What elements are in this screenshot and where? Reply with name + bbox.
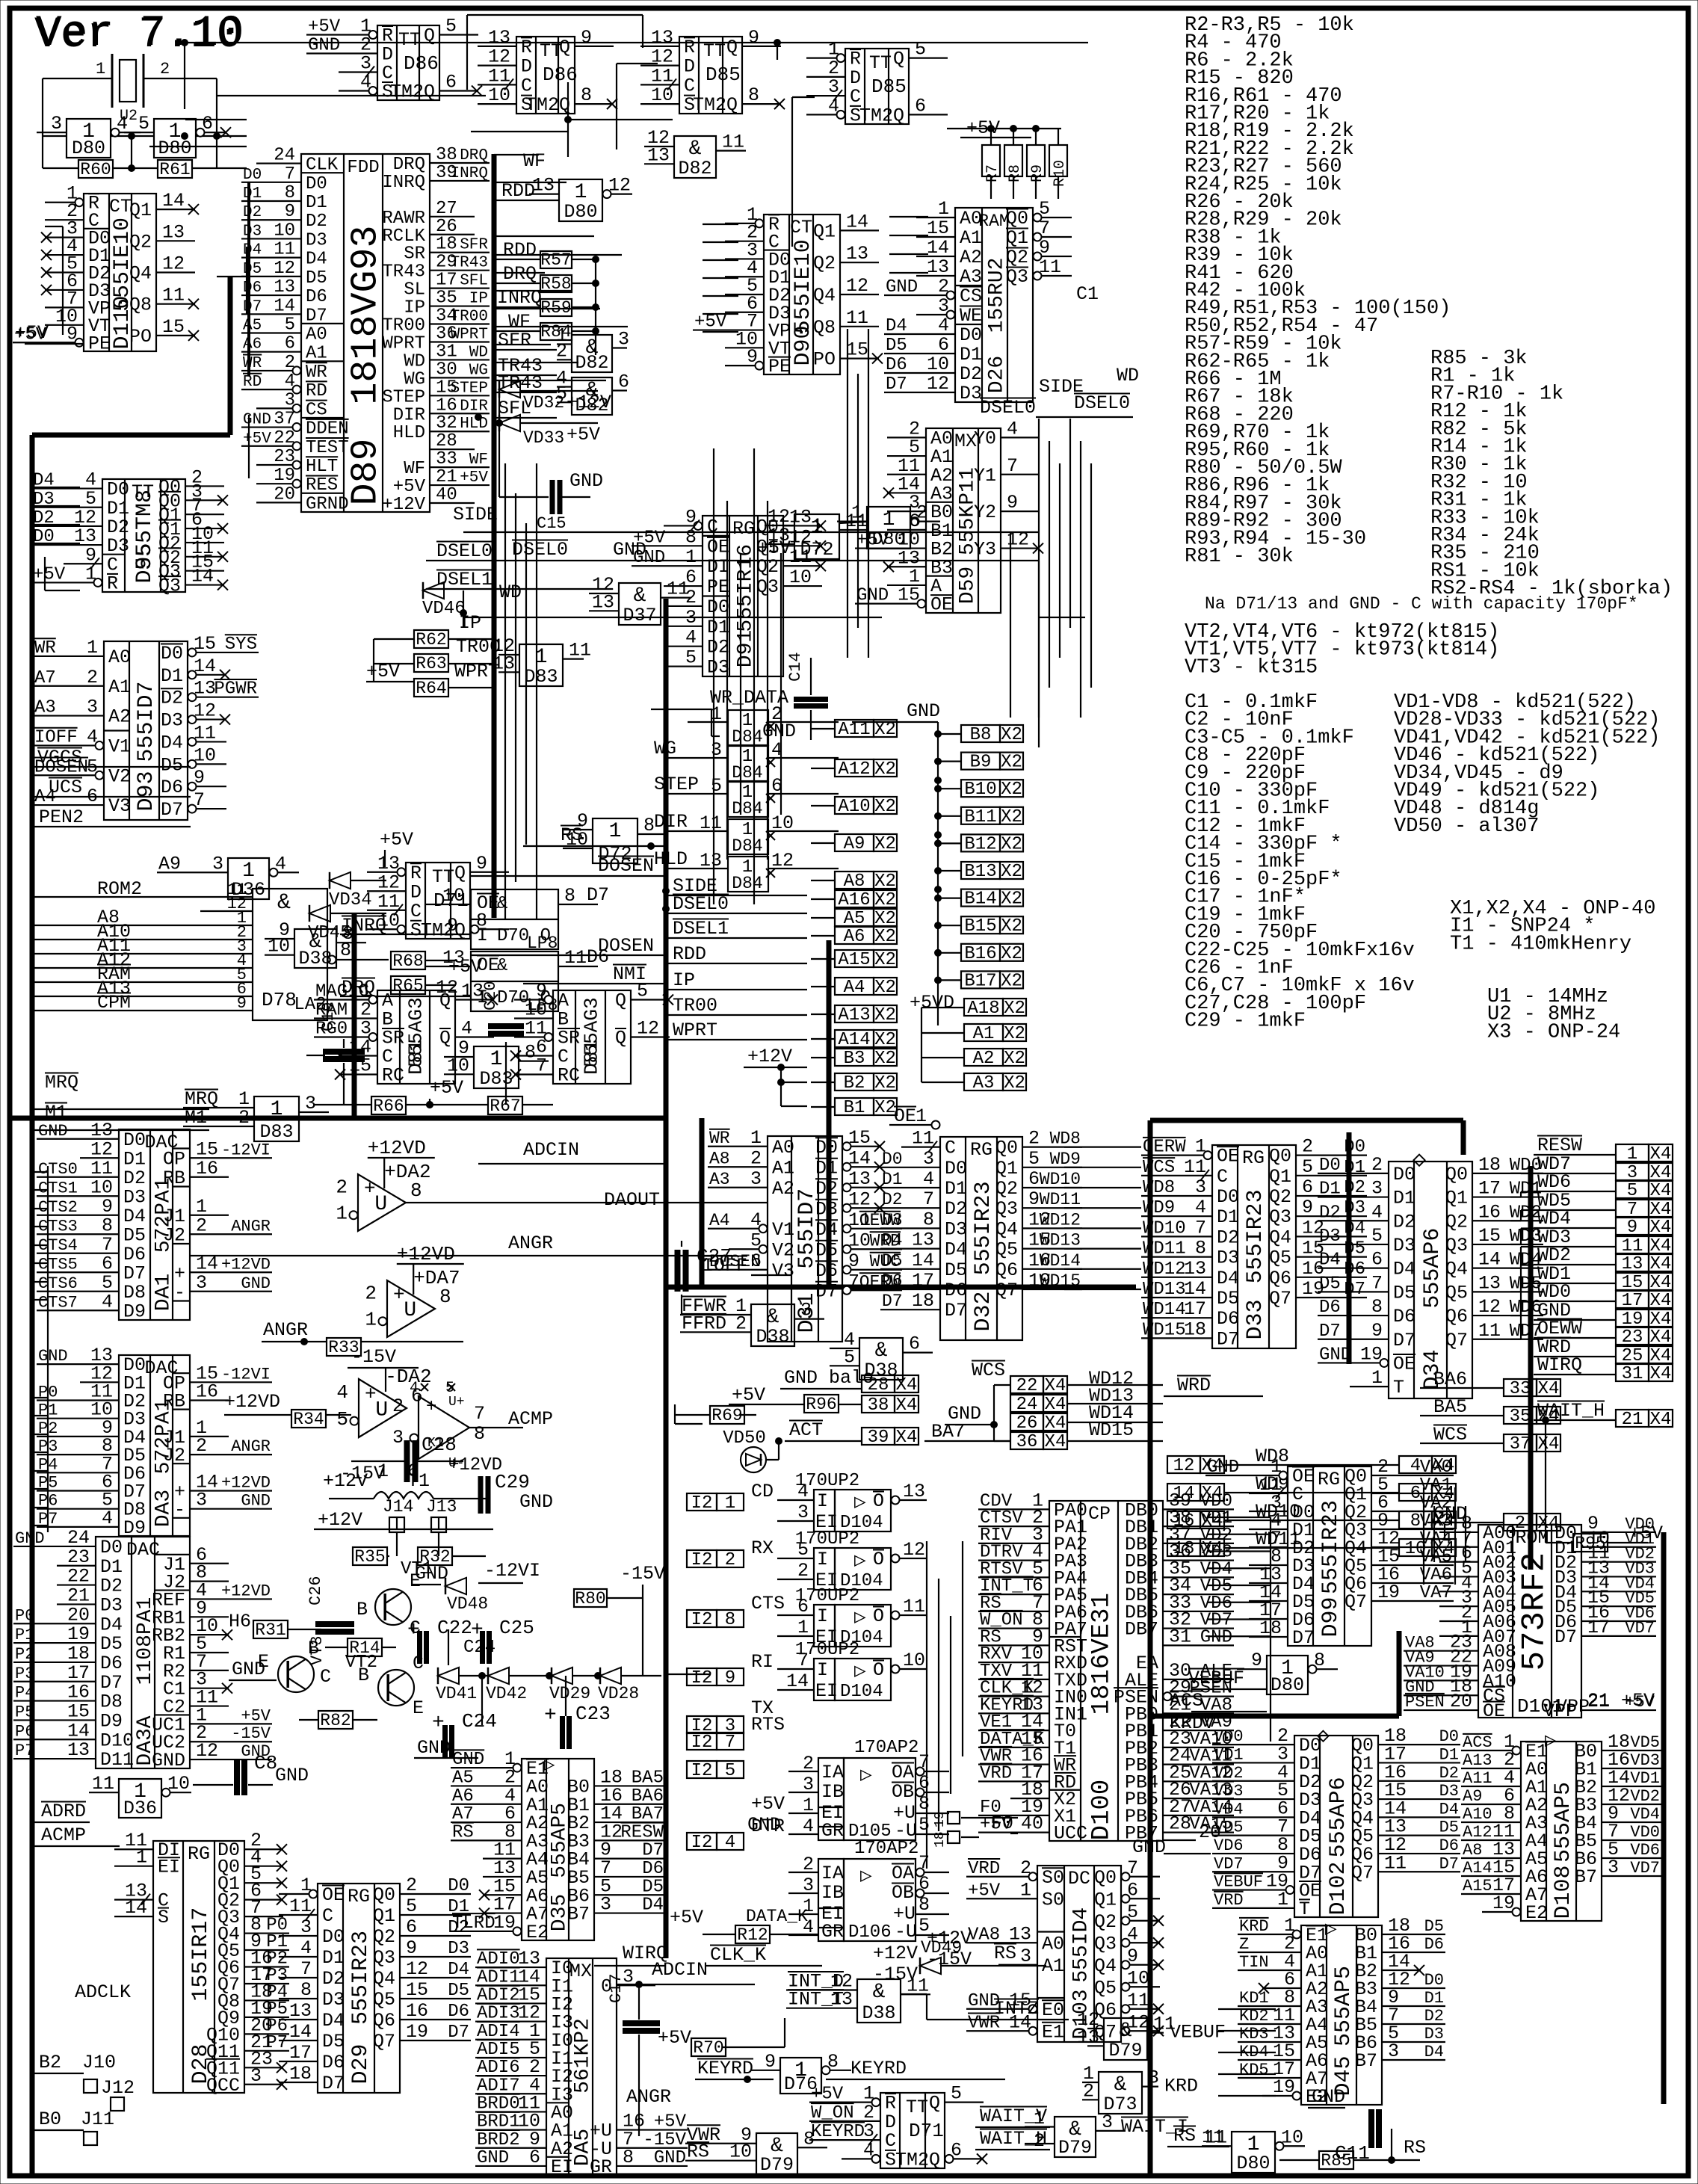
svg-text:D6: D6: [161, 777, 183, 798]
svg-text:555IR23: 555IR23: [1318, 1500, 1344, 1594]
svg-text:11: 11: [789, 546, 812, 568]
svg-text:21: 21: [436, 467, 457, 487]
svg-text:R67: R67: [490, 1096, 520, 1116]
svg-text:12: 12: [608, 175, 631, 197]
svg-text:B0: B0: [39, 2109, 61, 2130]
svg-text:555IR23: 555IR23: [971, 1181, 996, 1275]
svg-text:D5: D5: [1344, 1239, 1365, 1259]
svg-text:23: 23: [1622, 1327, 1643, 1348]
svg-text:VD6: VD6: [1630, 1841, 1660, 1860]
svg-text:+5V: +5V: [658, 2027, 691, 2049]
svg-text:A6: A6: [844, 927, 865, 947]
svg-text:D2: D2: [1344, 1178, 1365, 1198]
svg-text:6: 6: [1028, 1168, 1040, 1190]
svg-text:E0: E0: [1042, 1999, 1064, 2021]
svg-text:D90: D90: [791, 325, 816, 365]
svg-text:A0: A0: [772, 1137, 794, 1159]
svg-text:6: 6: [797, 1596, 809, 1617]
svg-text:DSEL0: DSEL0: [436, 540, 493, 562]
svg-text:D2: D2: [707, 637, 729, 658]
svg-text:D5: D5: [243, 261, 262, 278]
svg-text:D71: D71: [909, 2120, 944, 2142]
svg-text:-15V: -15V: [620, 1563, 665, 1585]
svg-text:A15: A15: [1463, 1877, 1492, 1895]
svg-text:&: &: [497, 894, 507, 914]
svg-text:+5V: +5V: [856, 531, 889, 551]
svg-text:D7: D7: [1439, 1854, 1459, 1873]
svg-text:14: 14: [274, 296, 295, 316]
svg-text:7: 7: [1195, 1217, 1206, 1238]
svg-text:CTS1: CTS1: [38, 1179, 78, 1197]
svg-text:+5V: +5V: [243, 431, 271, 448]
svg-text:10: 10: [789, 567, 812, 588]
svg-text:9: 9: [1039, 237, 1050, 259]
svg-text:D3: D3: [882, 1210, 903, 1230]
svg-text:A1: A1: [772, 1157, 794, 1179]
svg-text:Q: Q: [439, 990, 451, 1012]
svg-text:31: 31: [1622, 1364, 1643, 1384]
svg-text:13: 13: [532, 175, 555, 197]
svg-text:WCS: WCS: [972, 1360, 1005, 1381]
svg-text:37: 37: [1510, 1434, 1531, 1455]
svg-text:SR: SR: [404, 244, 425, 265]
svg-text:12: 12: [846, 275, 868, 297]
svg-text:6: 6: [909, 1333, 920, 1355]
svg-text:CD: CD: [751, 1481, 774, 1502]
svg-text:5: 5: [1028, 1148, 1040, 1170]
svg-text:555IR23: 555IR23: [1243, 1189, 1268, 1283]
svg-text:WRD: WRD: [1177, 1375, 1211, 1396]
svg-text:D0: D0: [1424, 1971, 1444, 1990]
svg-text:8: 8: [827, 2051, 839, 2073]
svg-text:◇: ◇: [1413, 1148, 1426, 1173]
svg-text:+5V: +5V: [732, 1384, 765, 1406]
svg-text:MRQ: MRQ: [45, 1072, 78, 1093]
svg-text:+12V: +12V: [873, 1943, 918, 1964]
svg-text:T1: T1: [407, 1470, 430, 1492]
svg-text:D4: D4: [322, 2010, 345, 2032]
svg-text:2: 2: [1083, 2080, 1094, 2102]
svg-text:11: 11: [846, 307, 868, 329]
svg-text:X2: X2: [1004, 999, 1025, 1019]
svg-text:A1: A1: [973, 1024, 995, 1044]
svg-text:X4: X4: [896, 1375, 918, 1395]
svg-text:WD9: WD9: [1050, 1150, 1081, 1169]
svg-text:GND: GND: [654, 2148, 686, 2168]
svg-text:DSEL0: DSEL0: [673, 893, 729, 915]
svg-text:17: 17: [436, 271, 457, 291]
svg-text:8: 8: [1371, 1296, 1383, 1318]
svg-text:10: 10: [268, 936, 290, 957]
svg-text:IA: IA: [821, 1762, 844, 1783]
svg-text:13: 13: [846, 243, 868, 265]
svg-text:12: 12: [274, 259, 295, 279]
svg-text:GND: GND: [856, 586, 889, 606]
svg-text:D3: D3: [960, 383, 982, 404]
svg-text:WPRT: WPRT: [673, 1019, 717, 1041]
svg-text:VD0: VD0: [1214, 1727, 1244, 1746]
svg-text:GND bale: GND bale: [784, 1367, 874, 1389]
svg-text:B1: B1: [844, 1098, 865, 1118]
svg-text:6: 6: [951, 2139, 962, 2161]
svg-text:A12: A12: [1463, 1823, 1492, 1842]
svg-text:12: 12: [1173, 1456, 1195, 1476]
svg-text:Q5: Q5: [373, 1989, 395, 2011]
svg-text:ADRD: ADRD: [41, 1801, 86, 1822]
svg-text:3: 3: [797, 1502, 809, 1523]
svg-text:VEBUF: VEBUF: [1214, 1873, 1263, 1892]
svg-text:9: 9: [1627, 1218, 1637, 1238]
svg-text:14: 14: [125, 1897, 147, 1919]
svg-text:T1 - 410mkHenry: T1 - 410mkHenry: [1450, 933, 1631, 955]
svg-text:Q: Q: [454, 863, 466, 884]
svg-text:OE: OE: [1483, 1700, 1505, 1722]
svg-text:4: 4: [828, 95, 839, 117]
svg-text:Q5: Q5: [1269, 1247, 1291, 1269]
svg-text:2: 2: [1020, 1857, 1031, 1879]
svg-text:Q0: Q0: [1269, 1146, 1291, 1167]
svg-text:C20: C20: [481, 981, 500, 1011]
svg-text:18: 18: [1478, 1154, 1501, 1176]
svg-text:Q3: Q3: [1094, 1933, 1117, 1955]
svg-text:15: 15: [898, 584, 920, 606]
svg-text:D5: D5: [1393, 1282, 1415, 1304]
svg-text:VD2: VD2: [1214, 1764, 1244, 1783]
svg-text:D33: D33: [1243, 1299, 1268, 1339]
svg-text:Q0: Q0: [995, 1138, 1018, 1159]
svg-text:D81: D81: [405, 1040, 427, 1075]
svg-text:EI: EI: [815, 1680, 838, 1702]
svg-text:C14: C14: [786, 652, 805, 682]
svg-text:Q3: Q3: [373, 1947, 395, 1969]
svg-text:A5: A5: [452, 1768, 474, 1788]
svg-text:X2: X2: [1001, 889, 1022, 910]
svg-text:DAC: DAC: [126, 1539, 160, 1561]
svg-text:Q0: Q0: [1094, 1867, 1117, 1889]
svg-text:4: 4: [938, 315, 949, 336]
svg-text:INRQ: INRQ: [382, 173, 425, 193]
svg-text:5: 5: [138, 113, 149, 135]
svg-text:X2: X2: [1001, 944, 1022, 964]
svg-text:STEP: STEP: [654, 774, 699, 795]
svg-text:WD: WD: [404, 351, 425, 371]
svg-text:D7: D7: [882, 1292, 903, 1311]
svg-text:D7: D7: [1217, 1328, 1239, 1350]
svg-text:1: 1: [85, 563, 96, 584]
svg-text:R9: R9: [1029, 164, 1046, 182]
svg-text:PO: PO: [813, 349, 836, 371]
svg-text:Q4: Q4: [1094, 1955, 1117, 1977]
svg-text:17: 17: [1184, 1298, 1206, 1320]
svg-text:19: 19: [493, 1912, 516, 1934]
svg-text:D4: D4: [1319, 1250, 1341, 1271]
svg-text:D78: D78: [262, 989, 297, 1011]
svg-text:16: 16: [406, 2000, 428, 2022]
svg-text:I2: I2: [691, 1493, 713, 1514]
svg-text:D5: D5: [945, 1259, 967, 1281]
svg-text:D: D: [684, 56, 695, 78]
svg-text:Q1: Q1: [995, 1158, 1018, 1179]
svg-text:WPRT: WPRT: [382, 333, 425, 354]
svg-text:14: 14: [1184, 1278, 1206, 1300]
svg-text:8: 8: [285, 183, 295, 203]
svg-text:2: 2: [406, 1875, 417, 1896]
svg-text:D3: D3: [1319, 1227, 1341, 1247]
svg-text:DIR: DIR: [393, 405, 425, 425]
svg-text:D3: D3: [306, 230, 327, 250]
svg-text:9: 9: [1007, 492, 1018, 513]
svg-text:TLRD: TLRD: [452, 1913, 495, 1934]
svg-text:2: 2: [750, 1147, 762, 1169]
svg-text:26: 26: [436, 217, 457, 237]
svg-text:BA6: BA6: [632, 1786, 664, 1807]
svg-text:CS: CS: [960, 286, 982, 307]
svg-text:D32: D32: [971, 1291, 996, 1331]
svg-text:1: 1: [750, 1127, 762, 1149]
svg-text:RESW: RESW: [620, 1822, 664, 1842]
svg-text:555ID4: 555ID4: [1069, 1907, 1093, 1983]
svg-text:D4: D4: [882, 1231, 903, 1250]
svg-text:4: 4: [360, 72, 371, 93]
svg-text:VD41: VD41: [436, 1684, 477, 1703]
svg-text:D1: D1: [960, 344, 982, 365]
svg-text:RG: RG: [1318, 1469, 1340, 1490]
svg-text:RDD: RDD: [503, 239, 537, 261]
svg-text:2: 2: [87, 667, 98, 688]
svg-text:A1: A1: [108, 676, 131, 698]
svg-text:10: 10: [488, 84, 510, 106]
svg-text:6: 6: [1302, 1176, 1313, 1198]
svg-text:1: 1: [1020, 1879, 1031, 1901]
svg-text:15: 15: [406, 1979, 428, 2001]
svg-text:P2: P2: [15, 1645, 34, 1664]
svg-text:EI: EI: [158, 1857, 180, 1878]
svg-text:9: 9: [1127, 1946, 1138, 1967]
svg-text:GND: GND: [907, 700, 940, 722]
svg-text:DA3: DA3: [152, 1490, 175, 1527]
svg-text:WD14: WD14: [1040, 1251, 1081, 1271]
svg-text:170AP2: 170AP2: [854, 1839, 919, 1859]
svg-text:DA5: DA5: [571, 2129, 594, 2166]
svg-text:155RU2: 155RU2: [985, 258, 1008, 333]
svg-text:A15: A15: [838, 950, 870, 970]
svg-text:C23: C23: [575, 1703, 611, 1725]
svg-text:3: 3: [87, 697, 98, 718]
svg-text:B3: B3: [844, 1049, 865, 1069]
svg-text:WG: WG: [469, 362, 488, 379]
svg-text:VRD: VRD: [968, 1859, 1000, 1879]
svg-text:1: 1: [1627, 1144, 1637, 1165]
svg-text:3: 3: [51, 113, 62, 135]
svg-text:Q3: Q3: [158, 576, 181, 597]
svg-text:GND: GND: [519, 1491, 553, 1513]
svg-text:D5: D5: [1439, 1819, 1459, 1837]
svg-text:UCS: UCS: [49, 777, 82, 798]
svg-text:3: 3: [1371, 1178, 1383, 1200]
svg-text:X2: X2: [874, 797, 896, 817]
svg-text:LP8: LP8: [527, 934, 558, 953]
svg-text:D73: D73: [1103, 2094, 1137, 2115]
svg-text:Q4: Q4: [995, 1218, 1018, 1240]
svg-text:9: 9: [1251, 1650, 1262, 1671]
svg-text:INRQ: INRQ: [342, 915, 386, 937]
svg-text:15: 15: [67, 1700, 90, 1722]
svg-text:&: &: [497, 956, 507, 976]
svg-text:6: 6: [938, 334, 949, 356]
svg-text:14: 14: [846, 211, 868, 232]
svg-text:WG: WG: [654, 738, 676, 759]
svg-text:D0: D0: [243, 167, 262, 184]
svg-text:3: 3: [212, 853, 223, 874]
svg-text:10: 10: [167, 1773, 190, 1795]
svg-text:GND: GND: [1200, 1627, 1232, 1647]
svg-text:DA3A: DA3A: [134, 1715, 157, 1765]
svg-text:C: C: [322, 1905, 333, 1927]
svg-text:D4: D4: [886, 316, 907, 336]
svg-text:13: 13: [289, 2000, 312, 2022]
svg-text:A6: A6: [452, 1786, 474, 1807]
svg-text:V1: V1: [772, 1219, 794, 1241]
svg-text:19: 19: [406, 2021, 428, 2043]
svg-text:8: 8: [923, 1209, 934, 1230]
svg-text:4: 4: [863, 2139, 874, 2161]
svg-text:RDD: RDD: [501, 180, 535, 202]
svg-text:5: 5: [1627, 1181, 1637, 1201]
svg-text:Q7: Q7: [1445, 1330, 1468, 1351]
svg-text:VD42: VD42: [486, 1684, 527, 1703]
svg-text:I2: I2: [691, 1761, 713, 1781]
svg-text:DI: DI: [707, 556, 729, 578]
svg-text:WR: WR: [709, 1129, 730, 1148]
svg-text:VD29: VD29: [549, 1684, 590, 1703]
svg-text:X4: X4: [1045, 1376, 1066, 1396]
svg-text:D3: D3: [322, 1989, 345, 2011]
svg-text:3: 3: [750, 1168, 762, 1190]
svg-text:GND: GND: [1312, 2086, 1345, 2108]
svg-text:RD: RD: [243, 374, 262, 391]
svg-text:A2: A2: [973, 1049, 995, 1069]
svg-text:WD13: WD13: [1040, 1231, 1081, 1250]
svg-text:32: 32: [436, 413, 457, 434]
svg-text:Q7: Q7: [373, 2031, 395, 2052]
svg-text:16: 16: [196, 1381, 218, 1403]
svg-text:D1: D1: [100, 1556, 123, 1578]
svg-text:I: I: [817, 1549, 828, 1570]
svg-text:VD7: VD7: [1214, 1854, 1244, 1873]
svg-text:BRD2: BRD2: [477, 2130, 520, 2150]
svg-text:V1: V1: [108, 735, 131, 757]
svg-text:A9: A9: [1463, 1787, 1482, 1806]
svg-text:7: 7: [848, 1271, 859, 1292]
svg-text:P4: P4: [15, 1684, 34, 1703]
svg-text:D110: D110: [110, 295, 135, 349]
svg-text:TM2Q: TM2Q: [859, 105, 904, 126]
svg-text:RG: RG: [348, 1886, 370, 1907]
svg-text:+: +: [407, 1619, 420, 1642]
svg-text:5: 5: [685, 647, 697, 669]
svg-text:D4: D4: [642, 1895, 664, 1916]
svg-text:TEST: TEST: [306, 438, 349, 458]
svg-text:D37: D37: [623, 605, 656, 626]
svg-text:R64: R64: [416, 679, 446, 698]
svg-text:6: 6: [529, 2147, 540, 2168]
svg-text:ADI6: ADI6: [477, 2058, 520, 2078]
svg-text:C: C: [1217, 1166, 1228, 1188]
svg-text:6: 6: [1127, 1879, 1138, 1901]
svg-text:GND: GND: [633, 548, 665, 568]
svg-text:C28: C28: [422, 1434, 457, 1456]
svg-text:2: 2: [196, 1435, 207, 1457]
svg-text:D5: D5: [322, 2031, 345, 2052]
svg-text:D80: D80: [1236, 2153, 1270, 2174]
svg-text:5: 5: [844, 1346, 855, 1368]
svg-text:28: 28: [868, 1375, 889, 1395]
svg-text:18: 18: [289, 2063, 312, 2085]
svg-text:D84: D84: [732, 799, 762, 818]
svg-text:D3: D3: [161, 710, 183, 732]
svg-text:D5: D5: [306, 268, 327, 289]
svg-text:7: 7: [725, 1733, 735, 1753]
svg-text:9: 9: [67, 323, 78, 345]
svg-text:+12VD: +12VD: [221, 1474, 271, 1493]
svg-text:X4: X4: [1650, 1291, 1672, 1311]
svg-text:R35: R35: [354, 1547, 385, 1567]
svg-text:X2: X2: [874, 834, 896, 854]
svg-text:555ID7: 555ID7: [794, 1188, 820, 1269]
svg-text:D1: D1: [815, 1157, 838, 1179]
svg-text:15: 15: [846, 339, 868, 361]
svg-text:3: 3: [803, 1774, 814, 1795]
svg-text:X3 - ONP-24: X3 - ONP-24: [1487, 1021, 1620, 1043]
svg-text:6: 6: [202, 113, 213, 135]
svg-text:RS: RS: [687, 2141, 709, 2163]
svg-text:5: 5: [919, 1814, 930, 1836]
svg-text:INT_T: INT_T: [788, 1989, 844, 2011]
svg-text:M1: M1: [185, 1107, 207, 1129]
svg-text:A0: A0: [108, 647, 131, 668]
svg-text:A16: A16: [838, 890, 870, 910]
svg-text:37: 37: [274, 410, 295, 430]
svg-text:J13: J13: [426, 1497, 457, 1517]
svg-text:+12VD: +12VD: [221, 1582, 271, 1600]
svg-text:VA0: VA0: [1420, 1457, 1452, 1478]
svg-text:16: 16: [1478, 1201, 1501, 1223]
svg-text:4: 4: [803, 1816, 814, 1837]
svg-text:3: 3: [923, 1148, 934, 1170]
svg-text:WCS: WCS: [1143, 1158, 1175, 1178]
svg-text:555AP6: 555AP6: [1326, 1777, 1351, 1857]
svg-text:8: 8: [919, 1894, 930, 1916]
svg-text:D85: D85: [871, 75, 907, 98]
svg-text:X2: X2: [1001, 916, 1022, 937]
svg-text:IOFF: IOFF: [34, 727, 78, 747]
svg-text:14: 14: [912, 1250, 934, 1271]
svg-text:D1: D1: [1319, 1179, 1341, 1200]
svg-text:+5V: +5V: [654, 2112, 687, 2132]
svg-text:TM2Q: TM2Q: [895, 2149, 940, 2171]
svg-text:GND: GND: [275, 1765, 309, 1786]
svg-text:R69: R69: [711, 1406, 742, 1425]
svg-text:GND: GND: [477, 2148, 509, 2168]
svg-text:WD10: WD10: [1143, 1218, 1186, 1238]
svg-text:13: 13: [903, 1481, 925, 1502]
svg-text:X2: X2: [1001, 807, 1022, 827]
svg-text:X2: X2: [1004, 1049, 1025, 1069]
svg-text:8: 8: [300, 1979, 312, 2001]
svg-text:+5V: +5V: [308, 17, 341, 37]
svg-text:D82: D82: [575, 352, 608, 374]
svg-text:IP: IP: [469, 291, 488, 308]
